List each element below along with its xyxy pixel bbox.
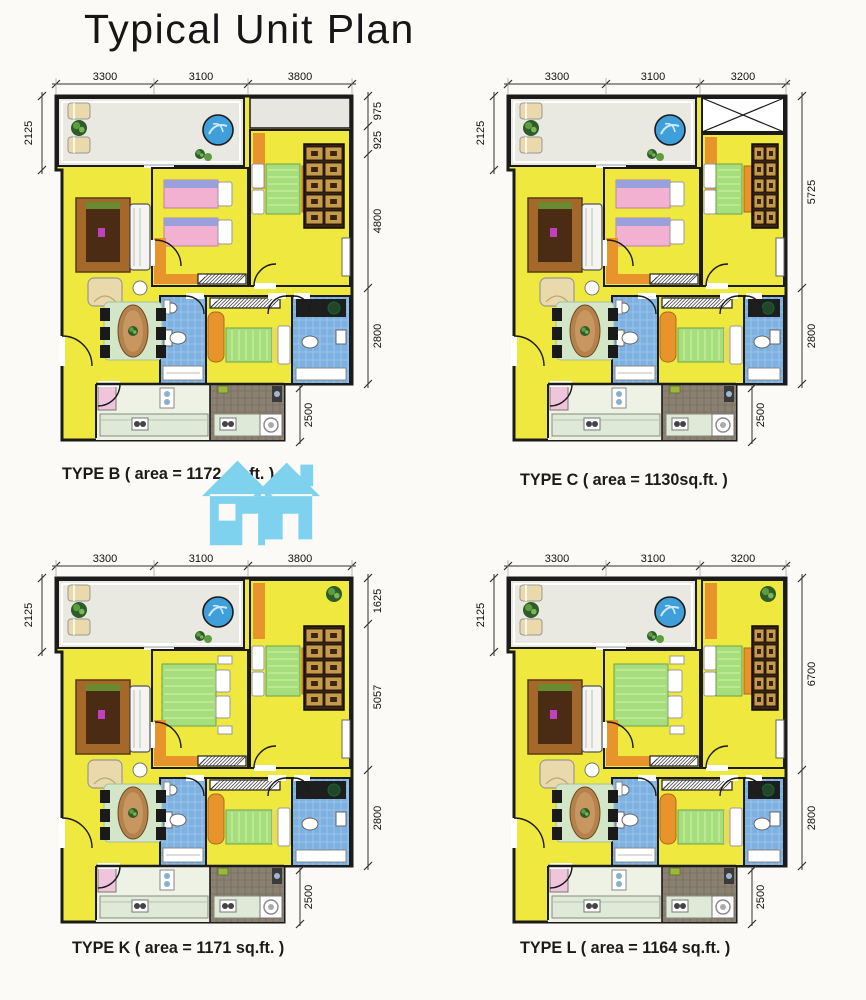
unit-plan-drawing: 3300310038002125975925480028002500 [23, 71, 384, 446]
dimension-label: 3300 [93, 71, 117, 83]
dimension-label: 2500 [755, 885, 767, 909]
master-bedroom [702, 134, 784, 289]
floor-plan-type-k: 33003100380021251625505728002500 [18, 550, 400, 944]
dimension-label: 6700 [806, 662, 818, 686]
dimension-label: 3200 [731, 71, 755, 83]
kitchen [96, 863, 210, 922]
dimension-label: 2800 [806, 324, 818, 348]
bathroom-1 [292, 293, 350, 384]
dimension-label: 2500 [303, 885, 315, 909]
floor-plan-type-c: 3300310032002125572528002500 [470, 68, 852, 462]
bathroom-1 [292, 775, 350, 866]
floor-plan-type-b: 3300310038002125975925480028002500 [18, 68, 400, 462]
bedroom-2 [149, 650, 248, 768]
dimension-label: 2800 [372, 806, 384, 830]
master-bedroom [250, 130, 350, 289]
dimension-label: 3100 [641, 553, 665, 565]
bathroom-2 [612, 293, 658, 384]
page-title: Typical Unit Plan [84, 6, 415, 53]
unit-plan-drawing: 3300310032002125670028002500 [475, 553, 818, 928]
master-bedroom [250, 580, 350, 771]
balcony [510, 98, 696, 168]
dimension-label: 2125 [475, 121, 487, 145]
dimension-label: 3300 [545, 553, 569, 565]
twin-house-watermark-icon [202, 450, 324, 550]
dimension-label: 2125 [23, 603, 35, 627]
dimension-label: 3200 [731, 553, 755, 565]
dimension-label: 5057 [372, 685, 384, 709]
dimension-label: 2800 [806, 806, 818, 830]
bathroom-1 [744, 293, 784, 384]
kitchen [96, 381, 210, 440]
dimension-label: 2125 [23, 121, 35, 145]
bedroom-2 [149, 168, 248, 286]
dimension-label: 3800 [288, 71, 312, 83]
bathroom-1 [744, 775, 784, 866]
unit-plan-drawing: 3300310032002125572528002500 [475, 71, 818, 446]
dimension-label: 4800 [372, 209, 384, 233]
bedroom-3 [658, 293, 744, 384]
bathroom-2 [160, 293, 206, 384]
caption-type-k: TYPE K ( area = 1171 sq.ft. ) [72, 938, 284, 958]
dimension-label: 3300 [93, 553, 117, 565]
dimension-label: 2500 [755, 403, 767, 427]
bedroom-2 [601, 650, 700, 768]
dimension-label: 3300 [545, 71, 569, 83]
floor-plan-type-l: 3300310032002125670028002500 [470, 550, 852, 944]
dimension-label: 2500 [303, 403, 315, 427]
dimension-label: 3100 [189, 553, 213, 565]
bathroom-2 [160, 775, 206, 866]
bathroom-2 [612, 775, 658, 866]
dimension-label: 2800 [372, 324, 384, 348]
bedroom-3 [206, 775, 292, 866]
front-house-icon [202, 461, 273, 546]
dimension-label: 1625 [372, 589, 384, 613]
utility-area [662, 384, 736, 440]
kitchen [548, 381, 662, 440]
utility-area [210, 866, 284, 922]
utility-area [210, 384, 284, 440]
balcony [58, 98, 244, 168]
dimension-label: 925 [372, 131, 384, 149]
unit-plan-drawing: 33003100380021251625505728002500 [23, 553, 384, 928]
utility-area [662, 866, 736, 922]
void-ledge [702, 98, 784, 132]
bedroom-2 [601, 168, 700, 286]
bedroom-3 [206, 293, 292, 384]
dimension-label: 3100 [189, 71, 213, 83]
bedroom-3 [658, 775, 744, 866]
dimension-label: 3100 [641, 71, 665, 83]
caption-type-c: TYPE C ( area = 1130sq.ft. ) [520, 470, 728, 490]
balcony [58, 580, 244, 650]
balcony [510, 580, 696, 650]
master-bedroom [702, 580, 784, 771]
kitchen [548, 863, 662, 922]
caption-type-l: TYPE L ( area = 1164 sq.ft. ) [520, 938, 730, 958]
dimension-label: 3800 [288, 553, 312, 565]
dimension-label: 2125 [475, 603, 487, 627]
dimension-label: 975 [372, 102, 384, 120]
dimension-label: 5725 [806, 180, 818, 204]
